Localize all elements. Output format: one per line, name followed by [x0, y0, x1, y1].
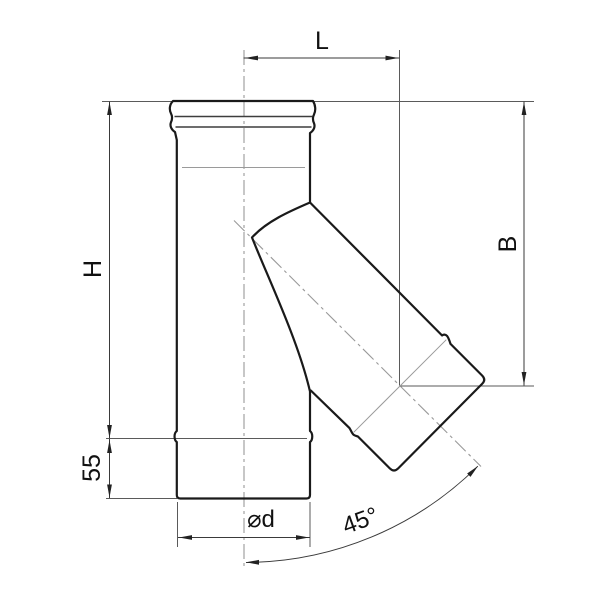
- l-left-arrow-icon: [245, 56, 258, 61]
- dimension-55: 55: [78, 439, 112, 498]
- angle-left-arrow-icon: [246, 560, 259, 565]
- 55-top-arrow-icon: [107, 440, 112, 453]
- branch-axis-centerline: [234, 221, 481, 467]
- dimension-label-H: H: [79, 260, 107, 278]
- diameter-right-arrow-icon: [296, 535, 309, 540]
- dimension-H: H: [79, 102, 112, 439]
- h-bottom-arrow-icon: [107, 425, 112, 438]
- dimension-B: B: [494, 102, 526, 386]
- dimension-angle: 45°: [246, 464, 480, 564]
- h-top-arrow-icon: [107, 102, 112, 115]
- 55-bottom-arrow-icon: [107, 485, 112, 498]
- l-right-arrow-icon: [386, 56, 399, 61]
- centerlines: [234, 50, 481, 570]
- angle-end-arrow-icon: [467, 464, 480, 477]
- diameter-left-arrow-icon: [179, 535, 192, 540]
- dimension-label-diameter: ⌀d: [247, 506, 275, 533]
- tee-fitting-diagram: L H 55 B ⌀d 45°: [0, 0, 600, 600]
- branch-outline: [310, 203, 484, 471]
- dimension-label-B: B: [494, 236, 522, 253]
- dimension-label-L: L: [315, 27, 329, 55]
- branch-pipe: [310, 203, 484, 471]
- dimension-label-55: 55: [78, 454, 106, 482]
- b-top-arrow-icon: [522, 102, 527, 115]
- dimension-L: L: [244, 27, 400, 60]
- b-bottom-arrow-icon: [522, 372, 527, 385]
- dimension-label-angle: 45°: [339, 502, 382, 540]
- technical-drawing-canvas: L H 55 B ⌀d 45°: [0, 0, 600, 600]
